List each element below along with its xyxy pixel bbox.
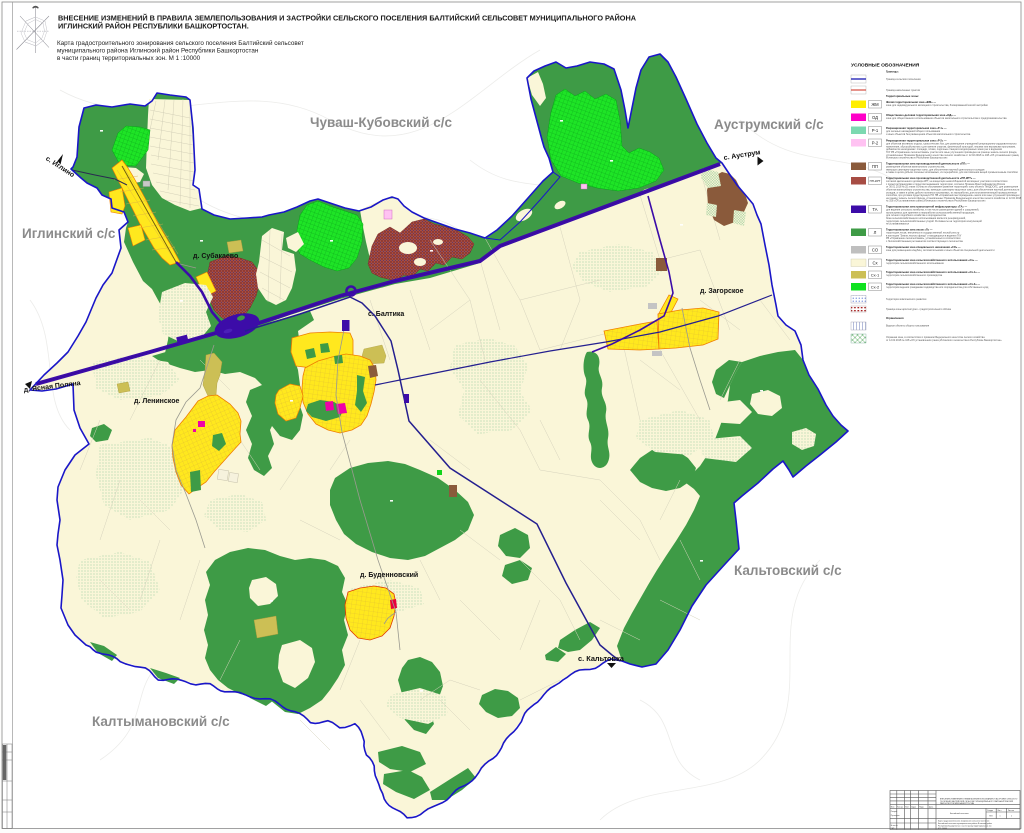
svg-text:Иглинский с/с: Иглинский с/с [22,226,116,241]
svg-text:Лист: Лист [998,810,1002,812]
svg-text:ОД: ОД [872,115,878,120]
svg-text:д. Буденновский: д. Буденновский [360,571,418,579]
svg-text:Проверил: Проверил [891,815,900,817]
svg-text:Граница населенных пунктов: Граница населенных пунктов [886,89,921,92]
svg-text:№ 108 «Об установлении границ: № 108 «Об установлении границ Иглинского… [886,200,986,203]
svg-text:и иных объектов без размещения: и иных объектов без размещения объектов … [886,133,971,136]
svg-text:Территориальные зоны:: Территориальные зоны: [886,94,919,98]
svg-text:М 1 :10000: М 1 :10000 [938,828,947,830]
svg-text:Сх-2: Сх-2 [871,284,880,289]
svg-text:территория ведения гражданами: территория ведения гражданами садоводств… [886,286,989,289]
svg-text:муниципального района Иглински: муниципального района Иглинский район Ре… [57,47,259,55]
svg-text:ПП-КРТ: ПП-КРТ [870,179,881,183]
svg-text:территория сельскохозяйственно: территория сельскохозяйственного произво… [886,274,943,277]
svg-text:Кол.уч: Кол.уч [897,807,903,809]
svg-text:Сх-1: Сх-1 [871,272,880,277]
svg-text:Границы:: Границы: [886,70,899,74]
svg-text:Р-2: Р-2 [872,140,879,145]
svg-text:ПЗЗ: ПЗЗ [989,816,992,818]
svg-text:Кальтовский с/с: Кальтовский с/с [734,563,842,578]
svg-text:1: 1 [1000,816,1001,818]
svg-text:РАЙОН РЕСПУБЛИКИ БАШКОРТОСТАН: РАЙОН РЕСПУБЛИКИ БАШКОРТОСТАН [940,802,975,805]
svg-text:Листов: Листов [1008,810,1014,812]
svg-text:Разраб.: Разраб. [891,811,898,813]
svg-text:Водные объекты общего пользова: Водные объекты общего пользования [886,325,930,328]
svg-text:Подп.: Подп. [919,807,924,809]
svg-text:в части границ территориальных: в части границ территориальных зон. М 1 … [57,55,201,62]
svg-text:Стадия: Стадия [987,810,993,812]
svg-text:ЖМ: ЖМ [871,102,879,107]
svg-text:зона для размещения кладбищ, с: зона для размещения кладбищ, скотомогиль… [886,249,995,252]
svg-text:Балтийский сельсовет: Балтийский сельсовет [950,812,969,815]
svg-text:УСЛОВНЫЕ ОБОЗНАЧЕНИЯ: УСЛОВНЫЕ ОБОЗНАЧЕНИЯ [851,63,920,69]
svg-text:ИГЛИНСКИЙ РАЙОН РЕСПУБЛИКИ БАШ: ИГЛИНСКИЙ РАЙОН РЕСПУБЛИКИ БАШКОРТОСТАН. [58,21,249,30]
svg-text:№док: №док [911,806,916,809]
svg-text:Граница сельского поселения: Граница сельского поселения [886,78,921,81]
svg-text:Карта градостроительного зонир: Карта градостроительного зонирования сел… [57,39,304,47]
svg-text:с. Балтика: с. Балтика [368,311,404,318]
svg-text:Территории комплексного развит: Территории комплексного развития [886,298,927,301]
svg-text:Н.контр.: Н.контр. [891,825,899,827]
svg-text:1: 1 [1011,816,1012,818]
svg-text:Ограничения: Ограничения [886,316,904,320]
svg-text:зона для общественного использ: зона для общественного использования объ… [886,117,1007,120]
svg-text:территория сельскохозяйственно: территория сельскохозяйственного использ… [886,262,944,265]
svg-text:д. Загорское: д. Загорское [700,288,744,295]
svg-text:ПП: ПП [872,164,878,169]
svg-text:Иглинского лесничества в Респу: Иглинского лесничества в Республике Башк… [886,157,948,160]
svg-text:Калтымановский с/с: Калтымановский с/с [92,714,230,729]
svg-text:от 12.02.2018 № 108 «Об устано: от 12.02.2018 № 108 «Об установлении гра… [886,339,1002,342]
svg-text:Л: Л [874,230,877,235]
svg-text:с. Кальтовка: с. Кальтовка [578,654,625,663]
svg-text:д. Ленинское: д. Ленинское [134,398,179,405]
svg-text:Сх: Сх [872,260,878,265]
svg-text:СО: СО [872,247,879,252]
svg-text:Лист: Лист [905,807,909,809]
svg-text:Чуваш-Кубовский с/с: Чуваш-Кубовский с/с [310,115,453,130]
svg-text:д. Субакаево: д. Субакаево [193,252,238,260]
svg-text:Р-1: Р-1 [872,128,879,133]
svg-text:не устанавливаются: не устанавливаются [886,223,910,226]
svg-text:Ауструмский с/с: Ауструмский с/с [714,117,824,132]
svg-text:зона для индивидуального жилищ: зона для индивидуального жилищного строи… [886,104,988,107]
svg-text:ТА: ТА [872,207,877,212]
svg-text:Граница зоны архитектурно - гр: Граница зоны архитектурно - градостроите… [886,308,952,311]
svg-text:а также в целях добычи полезны: а также в целях добычи полезных ископаем… [886,171,1018,174]
svg-text:с Лесохозяйственным регламенто: с Лесохозяйственным регламентом соответс… [886,240,963,243]
